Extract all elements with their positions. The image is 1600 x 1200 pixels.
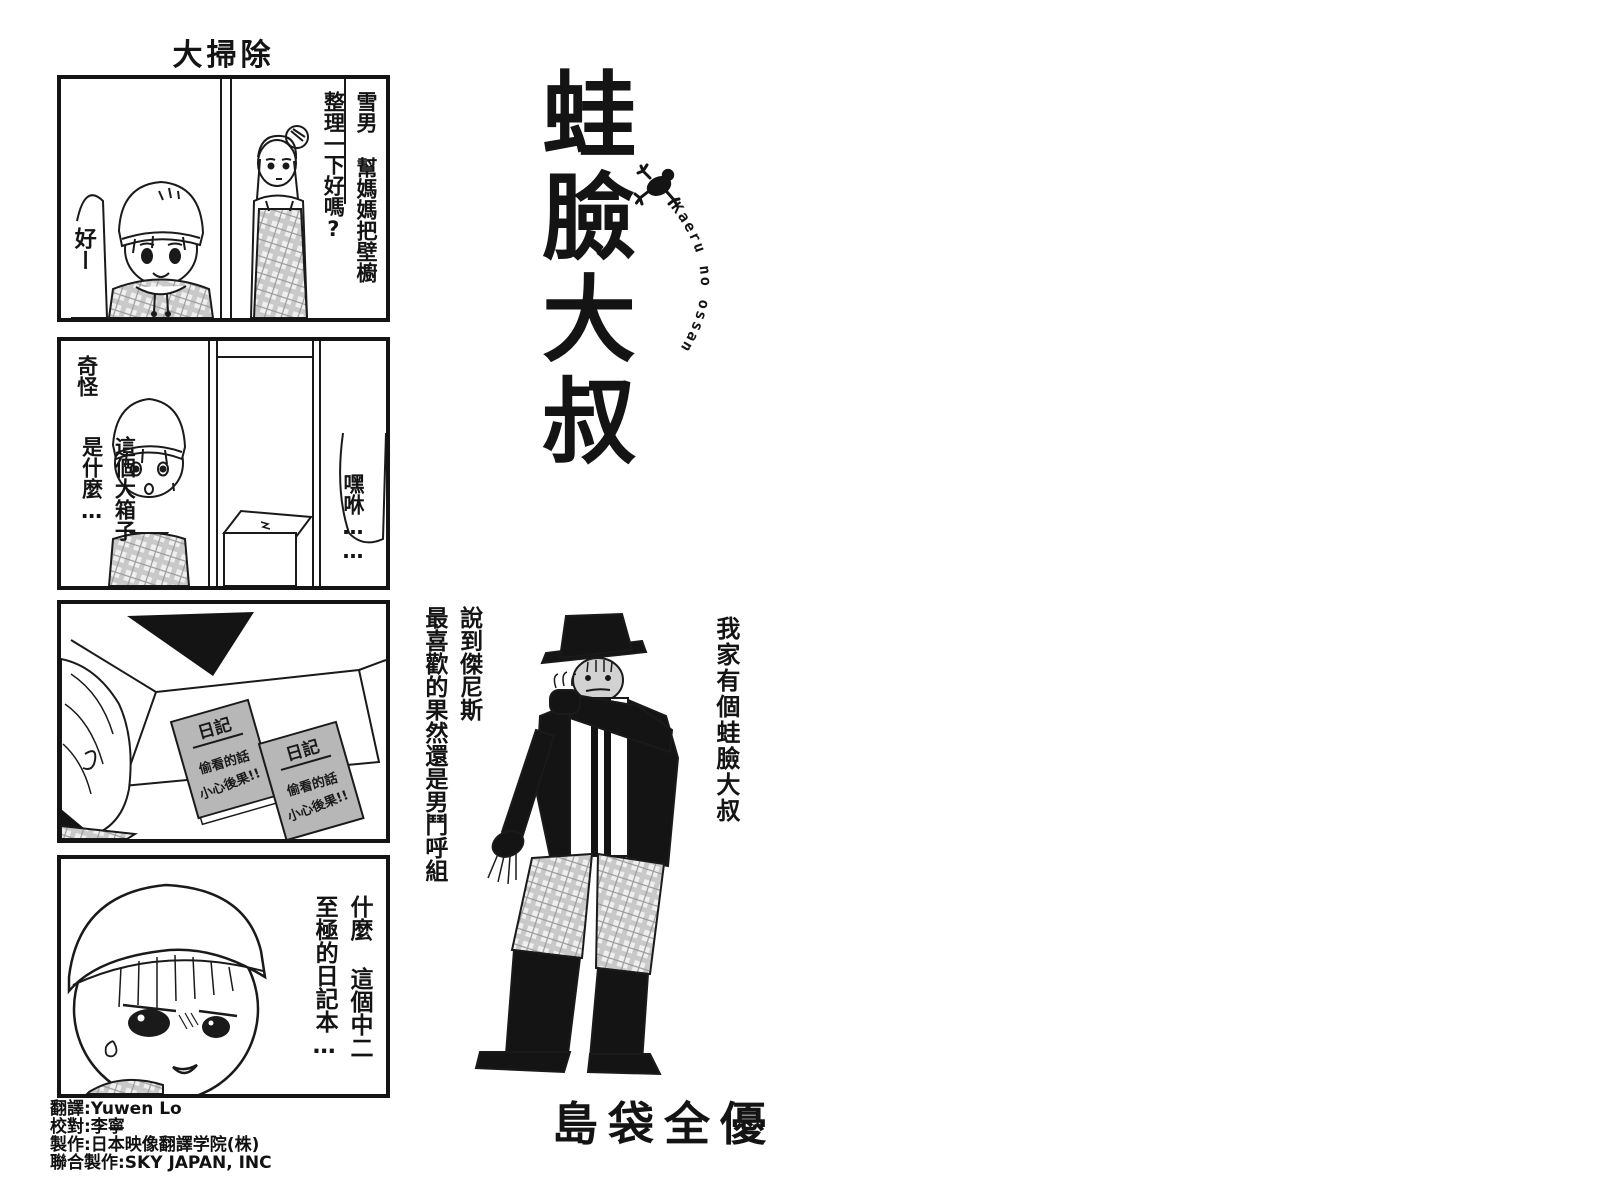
uncle-pants-right <box>596 854 664 974</box>
strip-title: 大掃除 <box>57 30 390 74</box>
panel2-boy-line1: 奇怪 <box>75 355 98 397</box>
uncle-pants-left <box>512 854 592 958</box>
credit-proofreader: 校對:李寧 <box>50 1118 272 1136</box>
panel1-mother-dialogue-col2: 整理一下好嗎? <box>317 91 350 283</box>
credits-block: 翻譯:Yuwen Lo 校對:李寧 製作:日本映像翻譯学院(株) 聯合製作:SK… <box>50 1100 272 1172</box>
panel4-boy-closeup <box>69 885 265 1094</box>
panel4-boy-dialogue-col1: 什麼 這個中二 <box>341 895 376 1059</box>
series-romaji: Kaeru no ossan <box>667 199 714 357</box>
panel-4: 什麼 這個中二 至極的日記本… <box>57 855 390 1098</box>
panel2-box <box>224 511 311 586</box>
frog-icon <box>635 165 679 205</box>
panel-3: 日記 偷看的話 小心後果!! 日記 偷看的話 小心後果!! <box>57 600 390 843</box>
panel1-boy-reply: 好ー <box>71 227 95 271</box>
uncle-boot-right <box>590 968 648 1062</box>
panel4-boy-dialogue-col2: 至極的日記本… <box>306 895 341 1059</box>
panel-1: 雪男 幫媽媽把壁櫥 整理一下好嗎? 好ー <box>57 75 390 322</box>
uncle-jacket-left <box>536 704 570 866</box>
caption-johnnys-col2: 最喜歡的果然還是男鬥呼組 <box>416 606 451 882</box>
panel1-mother-dialogue: 雪男 幫媽媽把壁櫥 整理一下好嗎? <box>317 91 382 283</box>
panel1-mother-dialogue-col1: 雪男 幫媽媽把壁櫥 <box>349 91 382 283</box>
caption-johnnys: 說到傑尼斯 最喜歡的果然還是男鬥呼組 <box>416 606 486 882</box>
author-name: 島袋全優 <box>552 1088 776 1154</box>
panel2-offscreen-voice: 嘿咻…… <box>341 473 364 563</box>
svg-text:Kaeru no ossan: Kaeru no ossan <box>667 199 714 357</box>
panel4-boy-dialogue: 什麼 這個中二 至極的日記本… <box>306 895 376 1059</box>
panel1-boy <box>109 182 213 318</box>
credit-coproduction: 聯合製作:SKY JAPAN, INC <box>50 1154 272 1172</box>
credit-production: 製作:日本映像翻譯学院(株) <box>50 1136 272 1154</box>
uncle-hat-crown <box>560 614 632 658</box>
panel-2: 奇怪 這個大箱子 是什麼… 嘿咻…… <box>57 337 390 590</box>
panel2-boy-line2-col2: 是什麼… <box>75 436 108 541</box>
series-logo-mark: Kaeru no ossan <box>606 156 736 396</box>
uncle-boot-left <box>506 950 580 1054</box>
credit-translator: 翻譯:Yuwen Lo <box>50 1100 272 1118</box>
panel1-mother <box>251 126 308 318</box>
panel2-boy-line2-col1: 這個大箱子 <box>108 436 141 541</box>
uncle-glove-shoulder <box>550 690 580 714</box>
panel3-artwork: 日記 偷看的話 小心後果!! 日記 偷看的話 小心後果!! <box>61 604 386 839</box>
panel3-closet-shadow <box>127 612 254 676</box>
panel2-boy-line2: 這個大箱子 是什麼… <box>75 436 140 541</box>
tagline: 我家有個蛙臉大叔 <box>712 616 738 824</box>
caption-johnnys-col1: 說到傑尼斯 <box>451 606 486 882</box>
panel3-boy-back <box>61 659 135 839</box>
